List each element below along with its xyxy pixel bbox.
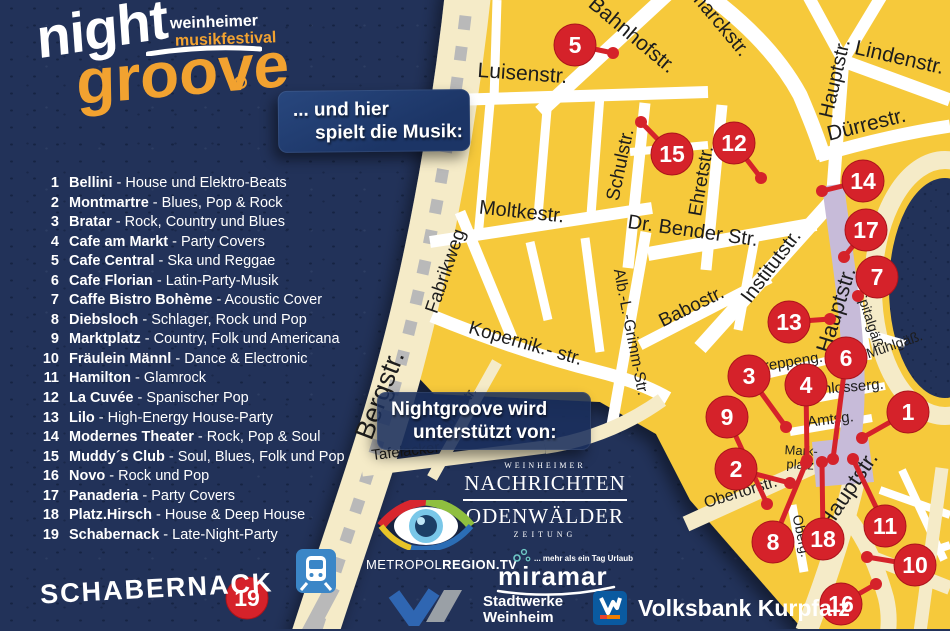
registered-mark-icon	[234, 76, 247, 89]
venue-name: Muddy´s Club	[69, 449, 165, 465]
venue-genre: Blues, Pop & Rock	[162, 195, 283, 211]
venue-number: 8	[34, 311, 59, 331]
volksbank-label: Volksbank Kurpfalz	[638, 595, 850, 622]
venue-number: 12	[34, 389, 59, 409]
metropolregion-tv-logo: METROPOLREGION.TV	[366, 500, 486, 572]
stadtwerke-line2: Weinheim	[483, 610, 563, 626]
venue-row-7: 7Caffe Bistro Bohème - Acoustic Cover	[34, 291, 370, 311]
venue-separator: -	[138, 312, 151, 328]
wn-divider	[463, 499, 627, 501]
venue-separator: -	[138, 488, 151, 504]
venue-number: 10	[34, 350, 59, 370]
venue-separator: -	[141, 331, 154, 347]
venue-number: 15	[34, 448, 59, 468]
venue-separator: -	[168, 234, 181, 250]
eye-icon	[373, 500, 479, 550]
venue-genre: Rock, Pop & Soul	[207, 429, 321, 445]
support-line1: Nightgroove wird	[391, 399, 591, 421]
venue-separator: -	[149, 195, 162, 211]
svg-text:18: 18	[810, 526, 836, 552]
venue-number: 18	[34, 506, 59, 526]
venue-genre: Late-Night-Party	[172, 527, 278, 543]
volksbank-v-icon	[593, 591, 627, 625]
venue-genre: Soul, Blues, Folk und Pop	[178, 449, 345, 465]
venue-separator: -	[194, 429, 207, 445]
venue-separator: -	[133, 390, 146, 406]
svg-text:3: 3	[743, 363, 756, 389]
svg-text:15: 15	[659, 141, 685, 167]
venue-name: Marktplatz	[69, 331, 141, 347]
venue-name: Lilo	[69, 410, 95, 426]
venue-genre: Dance & Electronic	[184, 351, 307, 367]
svg-text:12: 12	[721, 130, 747, 156]
venue-number: 9	[34, 330, 59, 350]
wn-main-label: NACHRICHTEN	[455, 471, 635, 496]
venue-row-10: 10Fräulein Männl - Dance & Electronic	[34, 350, 370, 370]
stadtwerke-chevrons-icon	[388, 586, 480, 626]
svg-text:17: 17	[853, 217, 879, 243]
venue-row-2: 2Montmartre - Blues, Pop & Rock	[34, 194, 370, 214]
venue-name: Cafe am Markt	[69, 234, 168, 250]
svg-text:11: 11	[873, 513, 898, 539]
intro-box: ... und hier spielt die Musik:	[278, 89, 471, 153]
svg-text:8: 8	[767, 529, 780, 555]
venue-separator: -	[165, 449, 178, 465]
venue-separator: -	[154, 253, 167, 269]
venue-number: 7	[34, 291, 59, 311]
support-box: Nightgroove wird unterstützt von:	[377, 392, 591, 450]
venue-name: Schabernack	[69, 527, 159, 543]
venue-row-9: 9Marktplatz - Country, Folk und American…	[34, 330, 370, 350]
venue-genre: Country, Folk und Americana	[154, 331, 340, 347]
svg-text:14: 14	[850, 168, 876, 194]
venue-separator: -	[152, 507, 165, 523]
svg-text:13: 13	[776, 309, 802, 335]
venue-row-15: 15Muddy´s Club - Soul, Blues, Folk und P…	[34, 448, 370, 468]
venue-number: 2	[34, 194, 59, 214]
svg-text:4: 4	[800, 372, 813, 398]
venue-row-4: 4Cafe am Markt - Party Covers	[34, 233, 370, 253]
svg-text:2: 2	[730, 456, 743, 482]
venue-name: La Cuvée	[69, 390, 133, 406]
venue-genre: Spanischer Pop	[146, 390, 248, 406]
volksbank-kurpfalz-logo: Volksbank Kurpfalz	[593, 591, 850, 625]
svg-text:1: 1	[902, 399, 915, 425]
venue-row-1: 1Bellini - House und Elektro-Beats	[34, 174, 370, 194]
venue-name: Fräulein Männl	[69, 351, 171, 367]
venue-name: Bratar	[69, 214, 112, 230]
venue-row-5: 5Cafe Central - Ska und Reggae	[34, 252, 370, 272]
venue-name: Diebsloch	[69, 312, 138, 328]
venue-number: 13	[34, 409, 59, 429]
venue-name: Hamilton	[69, 370, 131, 386]
venue-name: Bellini	[69, 175, 113, 191]
intro-line1: ... und hier	[293, 98, 470, 122]
venue-genre: House & Deep House	[165, 507, 305, 523]
sbahn-station-icon	[296, 549, 336, 593]
svg-text:9: 9	[721, 404, 734, 430]
venue-genre: High-Energy House-Party	[108, 410, 273, 426]
support-line2: unterstützt von:	[413, 422, 591, 444]
stadtwerke-line1: Stadtwerke	[483, 594, 563, 610]
intro-line2: spielt die Musik:	[315, 121, 470, 145]
venue-number: 14	[34, 428, 59, 448]
svg-text:10: 10	[902, 552, 928, 578]
venue-name: Modernes Theater	[69, 429, 194, 445]
metropolregion-tv-label: METROPOLREGION.TV	[366, 557, 486, 572]
venue-number: 6	[34, 272, 59, 292]
wn-top-label: WEINHEIMER	[455, 461, 635, 470]
stadtwerke-label: Stadtwerke Weinheim	[483, 594, 563, 626]
venue-row-11: 11Hamilton - Glamrock	[34, 369, 370, 389]
venue-row-17: 17Panaderia - Party Covers	[34, 487, 370, 507]
venue-number: 17	[34, 487, 59, 507]
venue-row-6: 6Cafe Florian - Latin-Party-Musik	[34, 272, 370, 292]
venue-name: Novo	[69, 468, 105, 484]
venue-row-13: 13Lilo - High-Energy House-Party	[34, 409, 370, 429]
svg-text:5: 5	[569, 32, 582, 58]
venue-separator: -	[105, 468, 118, 484]
venue-name: Caffe Bistro Bohème	[69, 292, 212, 308]
venue-name: Cafe Florian	[69, 273, 153, 289]
venue-genre: Glamrock	[144, 370, 206, 386]
venue-row-16: 16Novo - Rock und Pop	[34, 467, 370, 487]
venue-name: Montmartre	[69, 195, 149, 211]
venue-separator: -	[212, 292, 224, 308]
venue-row-3: 3Bratar - Rock, Country und Blues	[34, 213, 370, 233]
venue-name: Cafe Central	[69, 253, 154, 269]
venue-separator: -	[153, 273, 166, 289]
venue-separator: -	[159, 527, 172, 543]
venue-list: 1Bellini - House und Elektro-Beats2Montm…	[34, 174, 370, 545]
venue-genre: Rock und Pop	[118, 468, 209, 484]
venue-genre: Acoustic Cover	[225, 292, 323, 308]
stadtwerke-weinheim-logo: Stadtwerke Weinheim	[388, 586, 568, 628]
venue-number: 11	[34, 369, 59, 389]
venue-name: Platz.Hirsch	[69, 507, 152, 523]
venue-separator: -	[113, 175, 126, 191]
venue-genre: House und Elektro-Beats	[125, 175, 286, 191]
venue-genre: Schlager, Rock und Pop	[151, 312, 307, 328]
venue-genre: Rock, Country und Blues	[125, 214, 285, 230]
venue-row-8: 8Diebsloch - Schlager, Rock und Pop	[34, 311, 370, 331]
venue-separator: -	[112, 214, 125, 230]
svg-text:7: 7	[871, 264, 884, 290]
venue-number: 19	[34, 526, 59, 546]
venue-row-14: 14Modernes Theater - Rock, Pop & Soul	[34, 428, 370, 448]
venue-name: Panaderia	[69, 488, 138, 504]
metropol-thin: METROPOL	[366, 557, 442, 572]
venue-number: 1	[34, 174, 59, 194]
venue-row-19: 19Schabernack - Late-Night-Party	[34, 526, 370, 546]
venue-separator: -	[171, 351, 184, 367]
venue-row-18: 18Platz.Hirsch - House & Deep House	[34, 506, 370, 526]
venue-number: 16	[34, 467, 59, 487]
venue-genre: Party Covers	[151, 488, 235, 504]
venue-genre: Party Covers	[181, 234, 265, 250]
venue-genre: Ska und Reggae	[167, 253, 275, 269]
venue-separator: -	[95, 410, 108, 426]
venue-number: 4	[34, 233, 59, 253]
venue-genre: Latin-Party-Musik	[166, 273, 279, 289]
venue-number: 3	[34, 213, 59, 233]
venue-number: 5	[34, 252, 59, 272]
svg-text:6: 6	[840, 345, 853, 371]
venue-separator: -	[131, 370, 144, 386]
venue-row-12: 12La Cuvée - Spanischer Pop	[34, 389, 370, 409]
